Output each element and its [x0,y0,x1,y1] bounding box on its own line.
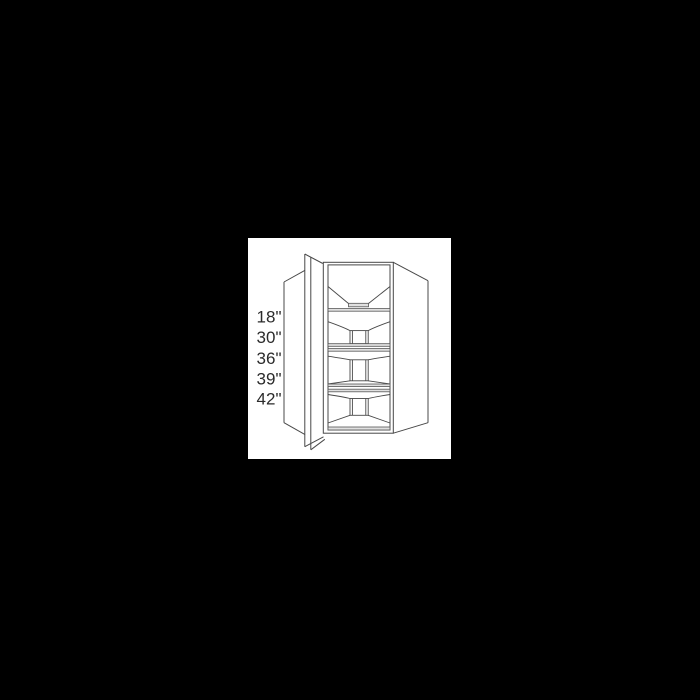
size-label-39: 39" [257,370,282,389]
cabinet-shelves [328,287,390,431]
cabinet-left-side-panel [284,270,305,434]
size-label-18: 18" [257,308,282,327]
lightbox-background: 18" 30" 36" 39" 42" [0,0,700,700]
product-image: 18" 30" 36" 39" 42" [248,238,451,459]
size-label-36: 36" [257,349,282,368]
cabinet-right-side-panel [393,262,428,433]
size-label-30: 30" [257,328,282,347]
size-labels: 18" 30" 36" 39" 42" [257,308,282,409]
corner-cabinet-diagram: 18" 30" 36" 39" 42" [248,238,451,459]
size-label-42: 42" [257,390,282,409]
cabinet-open-door [305,254,325,450]
